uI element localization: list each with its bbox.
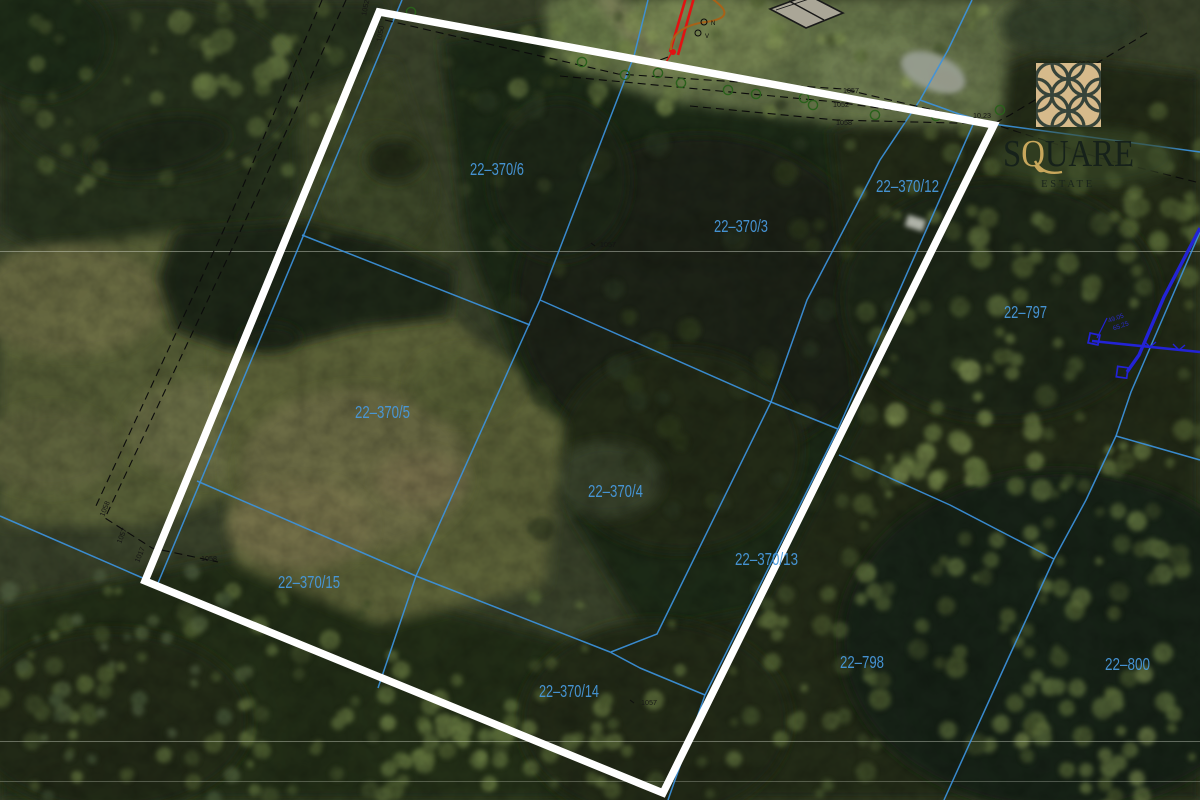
- svg-text:22–370/5: 22–370/5: [355, 402, 410, 422]
- svg-text:22–370/12: 22–370/12: [876, 176, 939, 196]
- svg-text:22–370/4: 22–370/4: [588, 481, 643, 501]
- svg-text:22–797: 22–797: [1004, 302, 1047, 322]
- svg-text:1057: 1057: [641, 698, 657, 707]
- svg-text:10.23: 10.23: [973, 111, 991, 120]
- svg-text:N: N: [711, 21, 715, 27]
- svg-text:22–800: 22–800: [1105, 654, 1150, 674]
- svg-text:22–370/13: 22–370/13: [735, 549, 798, 569]
- svg-text:1052: 1052: [833, 100, 849, 109]
- svg-text:22–370/15: 22–370/15: [278, 572, 340, 592]
- svg-text:ESTATE: ESTATE: [1041, 179, 1095, 190]
- svg-text:1058: 1058: [836, 118, 852, 127]
- svg-text:22–370/6: 22–370/6: [470, 159, 524, 179]
- svg-text:22–370/3: 22–370/3: [714, 216, 768, 236]
- svg-text:1058: 1058: [201, 554, 217, 563]
- svg-text:SQUARE: SQUARE: [1003, 133, 1134, 175]
- svg-text:22–798: 22–798: [840, 652, 884, 672]
- svg-text:1057: 1057: [600, 240, 616, 249]
- svg-text:V: V: [705, 34, 709, 40]
- svg-text:22–370/14: 22–370/14: [539, 681, 599, 701]
- svg-text:1057: 1057: [843, 86, 859, 95]
